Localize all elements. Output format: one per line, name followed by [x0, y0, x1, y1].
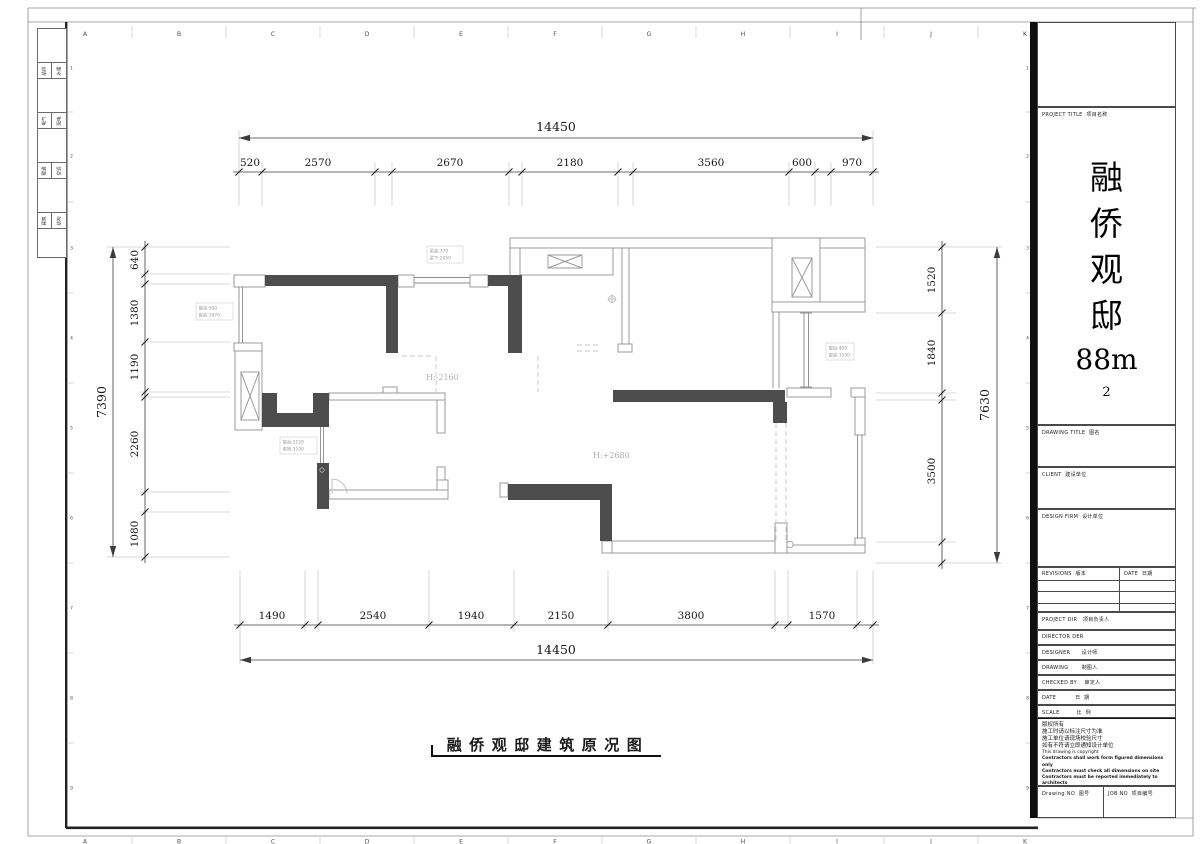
- project-dir-box: PROJECT DIR 项目负责人: [1037, 612, 1176, 630]
- dashed-lines: [402, 345, 786, 540]
- floor-plan-svg: 5202570267021803560600970144501490254019…: [0, 0, 1200, 844]
- svg-text:G: G: [647, 839, 652, 844]
- svg-text:520: 520: [240, 157, 260, 169]
- dimension-annotations: 5202570267021803560600970144501490254019…: [94, 119, 1002, 664]
- svg-text:2150: 2150: [548, 610, 575, 622]
- svg-text:8: 8: [1026, 696, 1029, 702]
- drawing-no-label: Drawing NO 图号: [1038, 787, 1103, 797]
- svg-text:1: 1: [1026, 66, 1029, 72]
- svg-text:梁高:370: 梁高:370: [430, 248, 449, 255]
- svg-text:H: H: [741, 839, 746, 844]
- sheet-frame: [28, 8, 1196, 836]
- svg-text:970: 970: [842, 157, 862, 169]
- svg-text:F: F: [553, 31, 557, 38]
- svg-text:14450: 14450: [536, 642, 576, 657]
- signature-cell: 给排水暖: [38, 63, 66, 79]
- client-label: CLIENT 建设单位: [1038, 468, 1175, 478]
- svg-text:5: 5: [70, 426, 73, 432]
- svg-text:2570: 2570: [305, 157, 332, 169]
- drawing-title-label: DRAWING TITLE 图名: [1038, 426, 1175, 436]
- svg-text:3560: 3560: [698, 157, 725, 169]
- revision-row: [1038, 592, 1175, 604]
- signature-column: 给排水暖电气配电暖通空调建筑结构: [37, 28, 67, 258]
- project-title-char: 邸: [1090, 298, 1123, 334]
- svg-text:E: E: [459, 31, 463, 38]
- svg-text:A: A: [83, 31, 88, 38]
- svg-text:6: 6: [1026, 516, 1029, 522]
- copyright-notes-box: 版权所有施工时请以标注尺寸为准施工单位请现场校验尺寸如有不符请立即通知设计单位T…: [1037, 718, 1176, 786]
- svg-text:5: 5: [1026, 426, 1029, 432]
- design-firm-label: DESIGN FIRM 设计单位: [1038, 510, 1175, 520]
- signature-cell: 建筑结构: [38, 213, 66, 229]
- copyright-note-line: Contractors shall work form figured dime…: [1042, 756, 1173, 769]
- svg-text:I: I: [836, 839, 838, 844]
- svg-text:1190: 1190: [129, 354, 141, 381]
- svg-text:3: 3: [70, 246, 73, 252]
- drain-circle-icon: [787, 541, 793, 547]
- svg-text:3500: 3500: [926, 458, 938, 485]
- svg-text:1520: 1520: [926, 267, 938, 294]
- client-box: CLIENT 建设单位: [1037, 467, 1176, 509]
- floor-plan: 5202570267021803560600970144501490254019…: [68, 26, 1030, 844]
- svg-text:9: 9: [70, 786, 73, 792]
- job-no-label: JOB NO 项目编号: [1104, 787, 1175, 797]
- title-block-divider-bar: [1030, 22, 1037, 818]
- checked-by-box: CHECKED BY 审定人: [1037, 675, 1176, 690]
- svg-text:7: 7: [1026, 606, 1029, 612]
- svg-text:1840: 1840: [926, 340, 938, 367]
- svg-text:2670: 2670: [437, 157, 464, 169]
- svg-text:2540: 2540: [360, 610, 387, 622]
- svg-text:窗高:1500: 窗高:1500: [829, 352, 851, 359]
- dim-chain-top: 520257026702180356060097014450: [233, 119, 879, 206]
- scale-box: SCALE 比 例: [1037, 705, 1176, 718]
- height-label: H:-2160: [426, 373, 459, 382]
- svg-text:K: K: [1023, 839, 1028, 844]
- signature-cell: 电气配电: [38, 113, 66, 129]
- drawing-sheet: 5202570267021803560600970144501490254019…: [0, 0, 1200, 844]
- designer-box: DESIGNER 设计师: [1037, 645, 1176, 660]
- project-title-char: 观: [1090, 252, 1123, 288]
- svg-text:E: E: [459, 839, 463, 844]
- project-title-char: 2: [1102, 386, 1110, 399]
- director-box: DIRECTOR DER: [1037, 630, 1176, 645]
- date-col-label: DATE 日期: [1120, 568, 1175, 577]
- revision-row: [1038, 581, 1175, 593]
- project-title-char: 侨: [1090, 206, 1123, 242]
- revisions-label: REVISIONS 版本: [1038, 568, 1119, 577]
- dim-chain-bottom: 14902540194021503800157014450: [234, 570, 879, 664]
- svg-text:1080: 1080: [129, 521, 141, 548]
- svg-text:3: 3: [1026, 246, 1029, 252]
- svg-text:1570: 1570: [809, 610, 836, 622]
- copyright-note-line: 施工时请以标注尺寸为准: [1042, 729, 1173, 736]
- svg-text:窗台:500: 窗台:500: [199, 305, 218, 312]
- svg-text:4: 4: [70, 336, 73, 342]
- svg-text:1490: 1490: [259, 610, 286, 622]
- svg-text:8: 8: [70, 696, 73, 702]
- svg-text:F: F: [553, 839, 557, 844]
- svg-text:3800: 3800: [678, 610, 705, 622]
- svg-text:7: 7: [70, 606, 73, 612]
- svg-text:A: A: [83, 839, 88, 844]
- drawing-caption: 融侨观邸建筑原况图: [434, 734, 662, 755]
- frame-bottom-thick-line: [66, 827, 1038, 830]
- project-title-char: 88m: [1075, 344, 1137, 376]
- svg-text:I: I: [836, 31, 838, 38]
- svg-text:D: D: [365, 839, 370, 844]
- dim-chain-right: 1520184035007630: [876, 241, 1002, 569]
- height-label: H:+2680: [593, 451, 630, 460]
- grid-references: AABBCCDDEEFFGGHHIIJJKK112233445566778899: [68, 26, 1030, 844]
- svg-text:D: D: [365, 31, 370, 38]
- svg-text:窗台:2120: 窗台:2120: [283, 439, 305, 446]
- svg-text:H: H: [741, 31, 746, 38]
- svg-text:7390: 7390: [94, 386, 109, 418]
- svg-text:2180: 2180: [557, 157, 584, 169]
- walls-dark: [262, 275, 787, 541]
- signature-cell: 暖通空调: [38, 163, 66, 179]
- project-title-box: PROJECT TITLE 项目名称 融侨观邸88m2: [1037, 107, 1176, 425]
- project-title-label: PROJECT TITLE 项目名称: [1038, 108, 1175, 118]
- svg-text:6: 6: [70, 516, 73, 522]
- svg-text:2260: 2260: [129, 431, 141, 458]
- svg-text:J: J: [929, 31, 932, 38]
- svg-text:窗高:1970: 窗高:1970: [199, 312, 221, 319]
- date-box: DATE 日 期: [1037, 690, 1176, 705]
- svg-text:J: J: [929, 839, 932, 844]
- design-firm-box: DESIGN FIRM 设计单位: [1037, 509, 1176, 567]
- project-title-vertical: 融侨观邸88m2: [1038, 118, 1175, 399]
- drawing-person-box: DRAWING 制图人: [1037, 660, 1176, 675]
- svg-text:4: 4: [1026, 336, 1029, 342]
- svg-text:离地:1100: 离地:1100: [283, 446, 305, 453]
- svg-text:梁下:2050: 梁下:2050: [430, 255, 452, 262]
- drawing-no-box: Drawing NO 图号 JOB NO 项目编号: [1037, 786, 1176, 818]
- title-block-empty-box: [1037, 22, 1176, 107]
- svg-text:1940: 1940: [458, 610, 485, 622]
- revisions-box: REVISIONS 版本 DATE 日期: [1037, 567, 1176, 612]
- svg-text:G: G: [647, 31, 652, 38]
- copyright-note-line: 如有不符请立即通知设计单位: [1042, 743, 1173, 750]
- svg-text:2: 2: [1026, 154, 1029, 160]
- svg-text:B: B: [177, 31, 181, 38]
- svg-text:1: 1: [70, 66, 73, 72]
- svg-text:2: 2: [70, 154, 73, 160]
- svg-text:600: 600: [792, 157, 812, 169]
- dim-chain-left: 64013801190226010807390: [94, 241, 230, 563]
- drawing-title-box: DRAWING TITLE 图名: [1037, 425, 1176, 467]
- svg-text:窗台:400: 窗台:400: [829, 345, 848, 352]
- copyright-note-line: 版权所有: [1042, 722, 1173, 729]
- svg-text:C: C: [271, 31, 275, 38]
- svg-text:7630: 7630: [977, 389, 992, 421]
- svg-text:640: 640: [129, 250, 141, 270]
- svg-text:B: B: [177, 839, 181, 844]
- copyright-note-line: 施工单位请现场校验尺寸: [1042, 736, 1173, 743]
- svg-text:9: 9: [1026, 786, 1029, 792]
- svg-text:C: C: [271, 839, 275, 844]
- svg-text:K: K: [1023, 31, 1028, 38]
- project-title-char: 融: [1090, 160, 1123, 196]
- svg-text:14450: 14450: [536, 119, 576, 134]
- svg-text:1380: 1380: [129, 300, 141, 327]
